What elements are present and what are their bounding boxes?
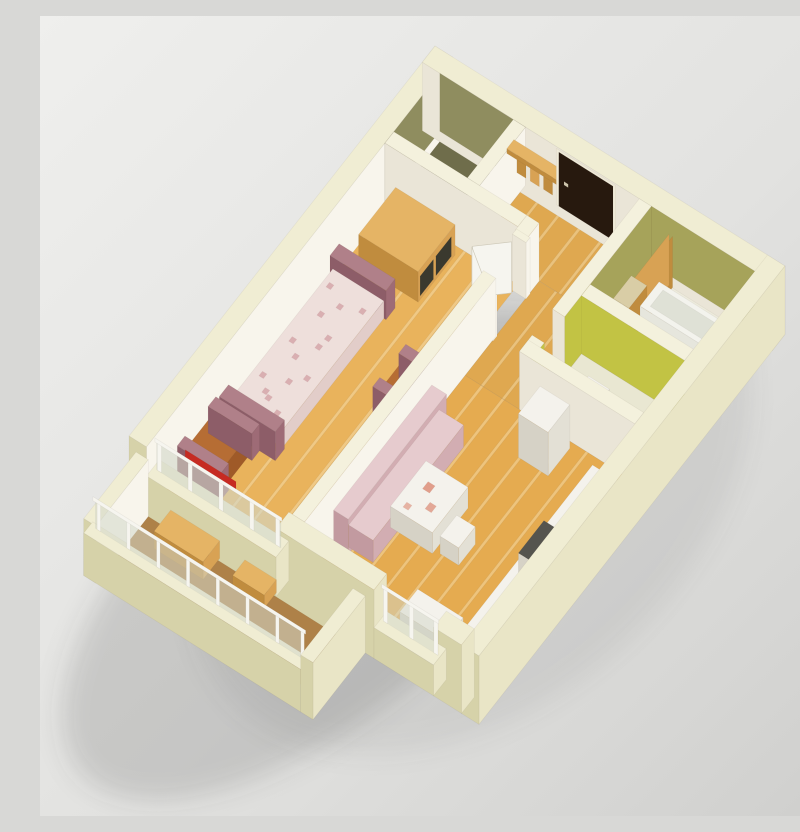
floorplan-render [40,16,800,816]
kitchen-window-mullion [409,603,413,640]
balcony-end-wall-right-face-l [301,655,313,720]
door-frame-post-a-face-l [512,234,526,299]
kitchen-window-mullion [434,619,438,656]
apartment-3d-floorplan [40,16,800,816]
door-frame-post-a-face-r [526,238,530,299]
kitchen-window-mullion [383,587,387,624]
